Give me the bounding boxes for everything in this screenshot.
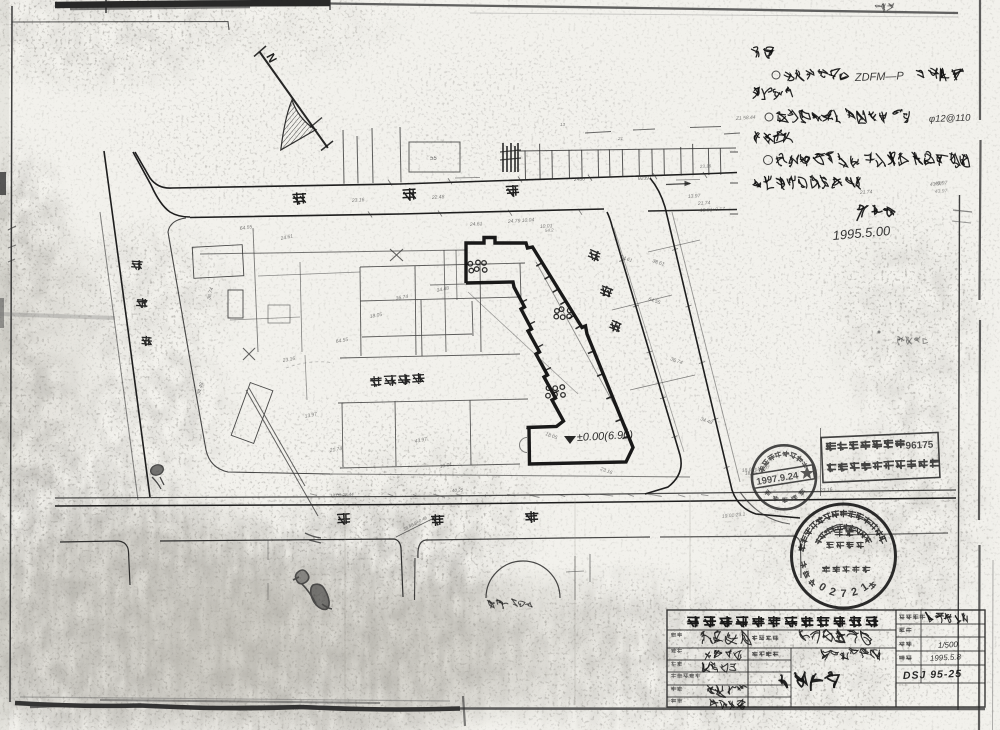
svg-text:7: 7: [840, 588, 846, 600]
svg-text:φ12@110: φ12@110: [929, 113, 972, 125]
svg-text:23.16: 23.16: [351, 197, 365, 204]
svg-text:4.0: 4.0: [292, 706, 300, 712]
svg-text:DSJ 95-25: DSJ 95-25: [903, 668, 963, 682]
svg-text:21.74: 21.74: [697, 200, 711, 207]
svg-text:23.16: 23.16: [699, 163, 712, 169]
svg-text:1995.5.8: 1995.5.8: [930, 652, 962, 663]
svg-text:40.25: 40.25: [452, 487, 464, 493]
svg-text:54.2: 54.2: [545, 227, 555, 233]
svg-text:22.48: 22.48: [431, 194, 445, 201]
svg-text:13: 13: [560, 122, 566, 127]
svg-text:24.61: 24.61: [469, 221, 483, 228]
svg-text:13.97: 13.97: [688, 193, 701, 200]
svg-text:2480: 2480: [573, 176, 586, 183]
svg-text:1/500: 1/500: [938, 640, 959, 650]
svg-text:43.97: 43.97: [935, 188, 948, 195]
svg-text:43.97: 43.97: [935, 180, 948, 187]
svg-text:21.74: 21.74: [859, 189, 873, 196]
svg-text:55: 55: [430, 156, 437, 162]
svg-text:21: 21: [617, 136, 624, 141]
svg-text:ZDFM—P: ZDFM—P: [854, 70, 905, 84]
svg-text:96175: 96175: [905, 440, 934, 452]
svg-text:θ2391: θ2391: [638, 175, 652, 182]
